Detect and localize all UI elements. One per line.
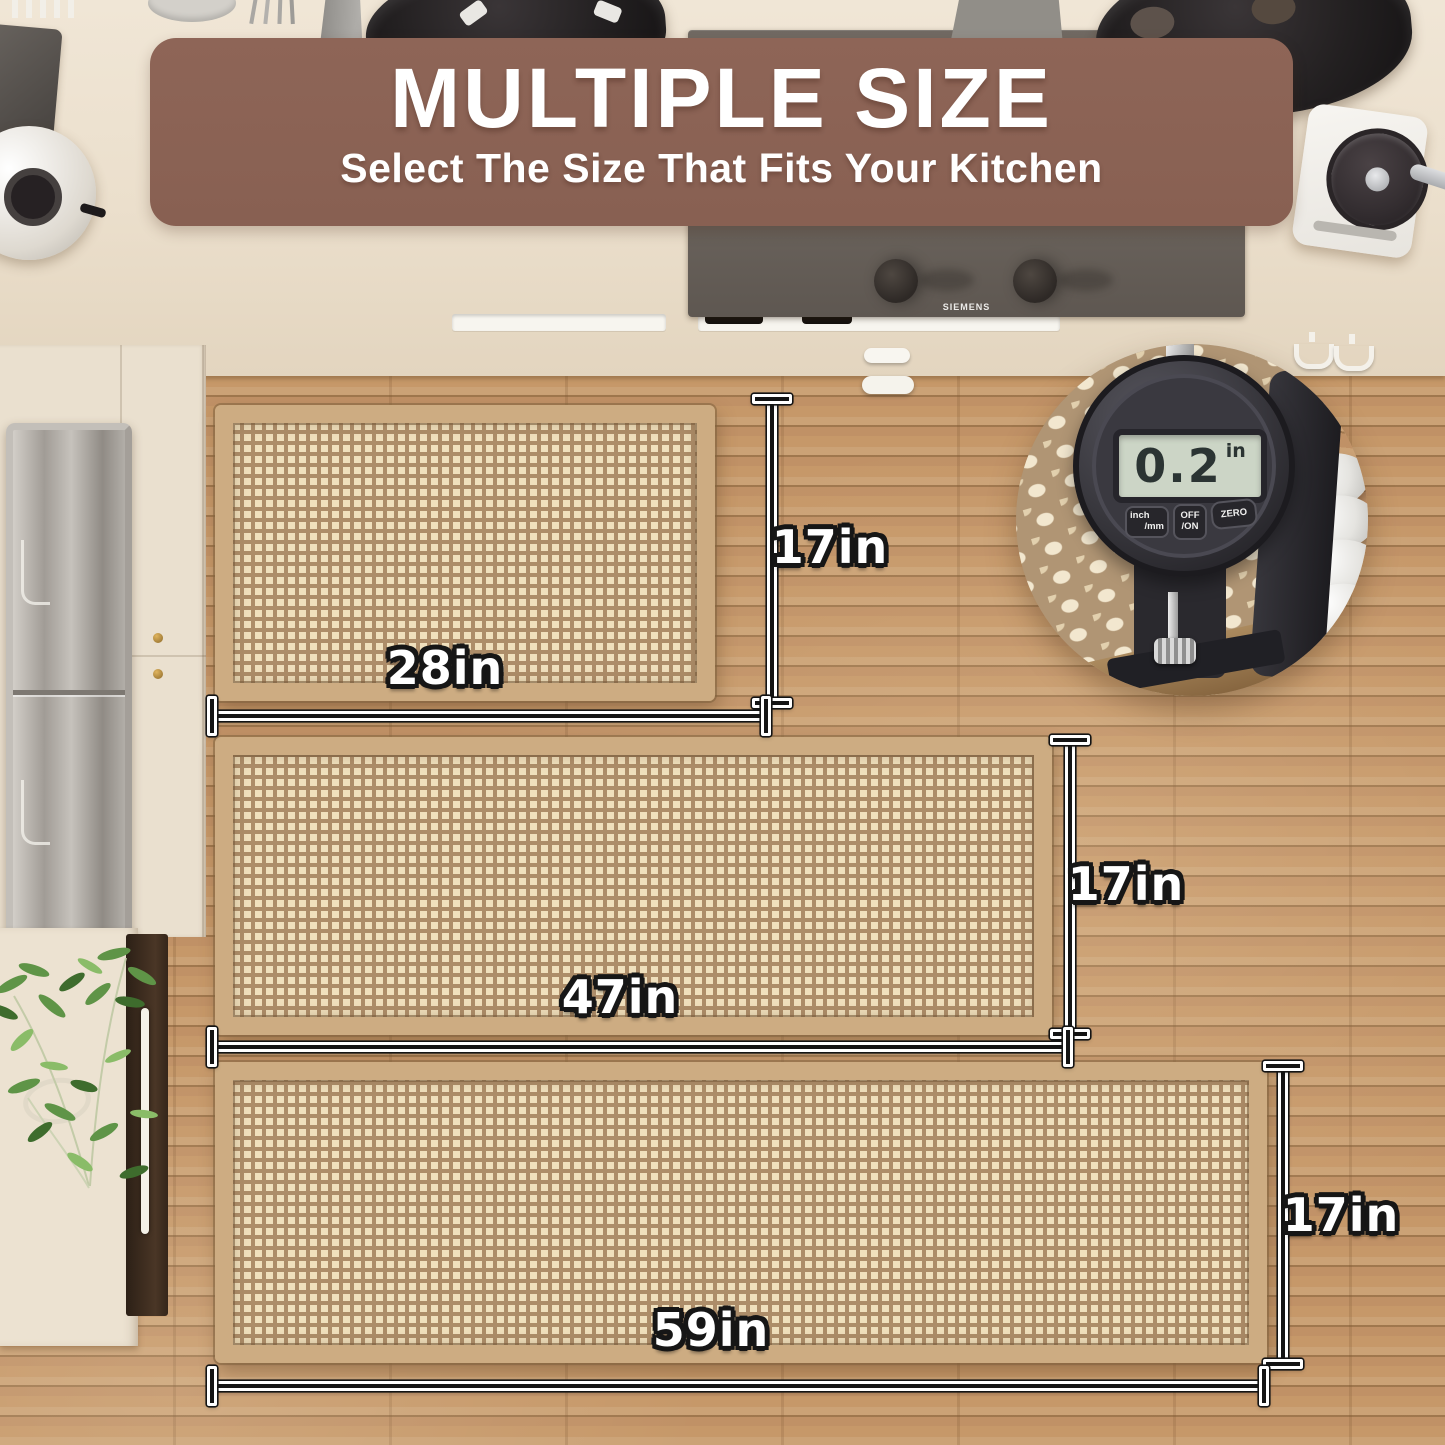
product-size-infographic: SIEMENS [0,0,1445,1445]
pot-handle [458,0,488,27]
appliance-handle-groove [21,540,50,605]
appliance-divider [13,690,125,695]
cabinet-seam [120,655,206,657]
coffee-maker-hub [1364,166,1391,193]
gauge-unit: in [1226,440,1246,462]
gauge-button-line: /ON [1178,522,1202,533]
dim-label-medium-height: 17in [1068,857,1185,911]
title-banner: MULTIPLE SIZE Select The Size That Fits … [150,38,1293,226]
pot-handle [593,0,623,24]
cabinet-knob [153,633,163,643]
dish-rack [12,0,82,18]
cabinet-seam [202,345,204,937]
gauge-button-line: /mm [1130,522,1164,533]
gauge-button-off-on: OFF /ON [1173,504,1207,540]
gauge-knurled-screw [1154,638,1196,664]
pot-knob [1250,0,1297,26]
counter-edge-channel [452,314,666,331]
thickness-gauge-inset: 0.2 in inch /mm OFF /ON ZERO [1016,344,1368,696]
dim-label-small-width: 28in [387,641,504,695]
dim-label-large-height: 17in [1283,1188,1400,1242]
house-plant [0,936,170,1228]
dim-label-small-height: 17in [772,520,889,574]
gauge-reading: 0.2 [1134,443,1222,489]
stove-knob [874,259,918,303]
gauge-button-inch-mm: inch /mm [1125,506,1169,538]
towel-hook [864,348,910,363]
kettle-lid [4,168,62,226]
pot-knob [1129,5,1176,41]
gauge-lcd: 0.2 in [1113,429,1267,503]
dim-label-large-width: 59in [653,1303,770,1357]
cabinet-knob [153,669,163,679]
banner-subtitle: Select The Size That Fits Your Kitchen [150,145,1293,192]
dim-label-medium-width: 47in [562,970,679,1024]
gauge-button-zero: ZERO [1210,498,1259,531]
appliance-handle-groove [21,780,50,845]
stove-knob [1013,259,1057,303]
stove-brand-label: SIEMENS [688,302,1245,312]
gauge-button-line: ZERO [1216,507,1253,522]
stainless-appliance [6,423,132,937]
towel-hook [862,376,914,394]
banner-title: MULTIPLE SIZE [150,54,1293,143]
coffee-maker-top [1291,102,1430,259]
